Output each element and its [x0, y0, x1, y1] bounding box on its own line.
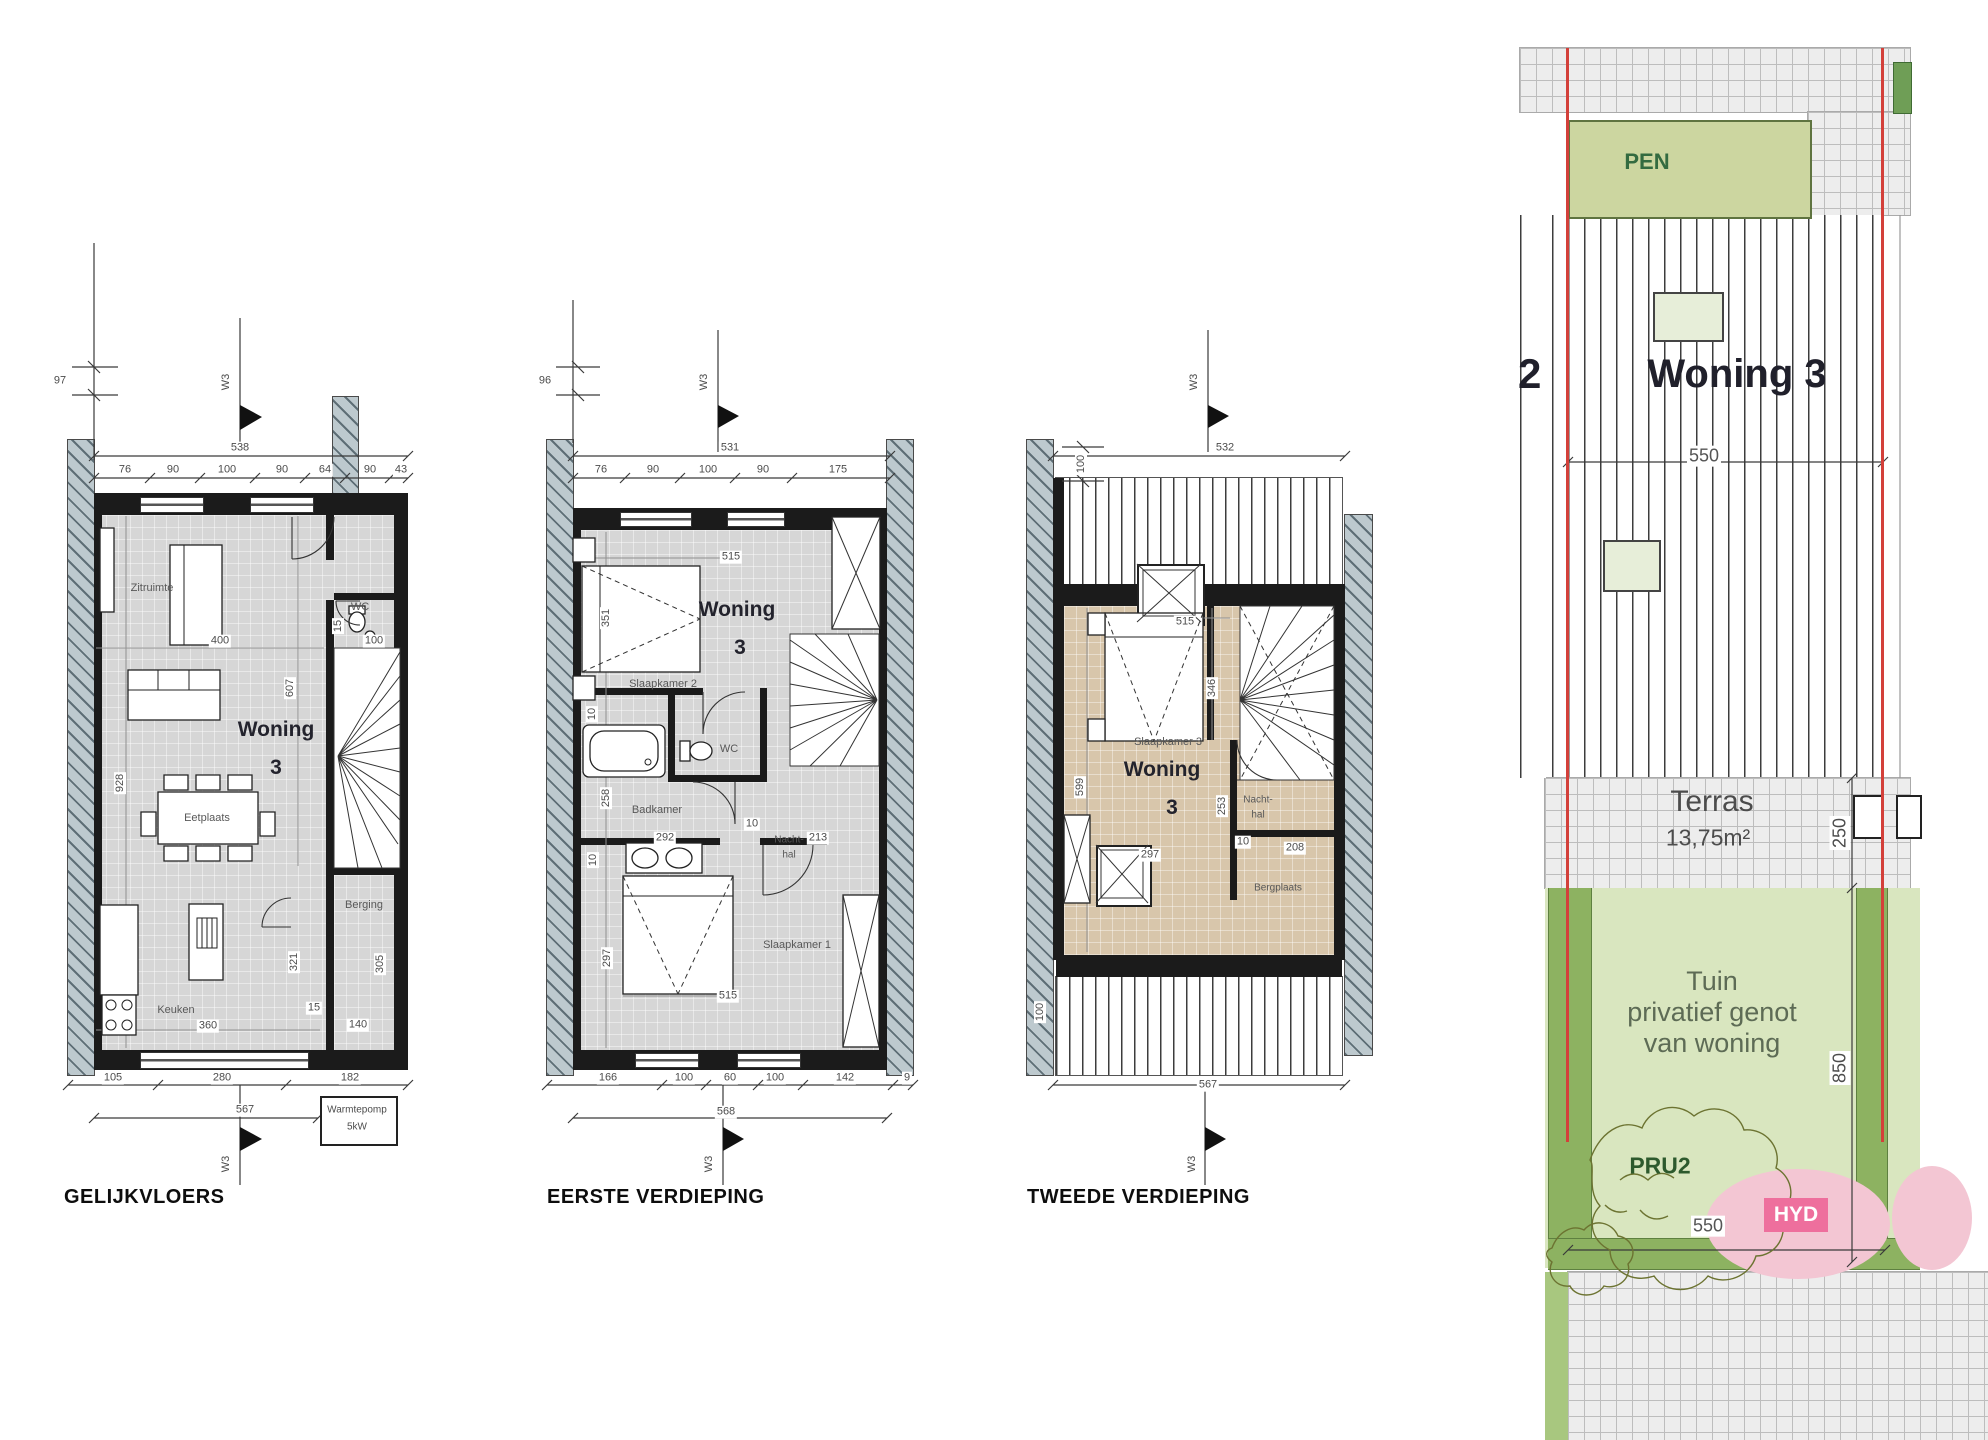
dim-top-p2-1: 90: [645, 464, 661, 477]
sofa-zitruimte: [170, 545, 222, 645]
w3-label-top-p2: W3: [698, 372, 710, 393]
dim-297-p3: 297: [1139, 849, 1161, 862]
wo​ning-label-p1-line2: 3: [270, 756, 282, 780]
dim-bottom-p1-0: 105: [102, 1072, 124, 1085]
dim-10c-p2: 10: [587, 852, 599, 868]
dim-321-p1: 321: [288, 951, 300, 973]
dim-total-top-p3: 532: [1214, 442, 1236, 455]
floorplan-sheet: 97 W3 538 76 90 100 90 64 90 43 Zitruimt…: [0, 0, 1988, 1440]
tuin-line3: van woning: [1602, 1028, 1822, 1059]
dim-bottom-p2-4: 142: [834, 1072, 856, 1085]
dim-10a-p2: 10: [586, 706, 598, 722]
tree-inner-scribble-1: [1605, 1173, 1674, 1218]
dim-offset-p1: 97: [52, 375, 68, 388]
dim-346-p3: 346: [1206, 677, 1218, 699]
dim-258-p2: 258: [600, 787, 612, 809]
dim-top-p2-2: 100: [697, 464, 719, 477]
dim-515-top-p2: 515: [720, 551, 742, 564]
dim-bottom-p2-1: 100: [673, 1072, 695, 1085]
dim-offset-bottom-p3: 100: [1034, 1001, 1046, 1023]
dim-top-p1-5: 90: [362, 464, 378, 477]
sofa-living: [128, 670, 220, 720]
warmtepomp-label-line1: Warmtepomp: [325, 1104, 389, 1116]
kitchen-stove: [102, 995, 136, 1035]
toilet-tank-first: [680, 741, 690, 761]
warmtepomp-label-line2: 5kW: [345, 1121, 369, 1133]
room-label-nachthal-p3-line1: Nacht-: [1243, 795, 1272, 806]
dim-360-p1: 360: [197, 1020, 219, 1033]
dim-515-bottom-p2: 515: [717, 990, 739, 1003]
w3-label-top-p3: W3: [1188, 372, 1200, 393]
neighbor-woning2-partial: 2: [1518, 350, 1541, 398]
w3-label-bottom-p2: W3: [703, 1154, 715, 1175]
dim-15-wc-p1: 15: [332, 618, 344, 634]
bottom-dim2-p1: [89, 1113, 323, 1123]
plan-title-eerste-verdieping: EERSTE VERDIEPING: [547, 1186, 764, 1209]
dim-515-p3: 515: [1174, 616, 1196, 629]
dim-550-garden: 550: [1691, 1216, 1725, 1237]
woning-label-p2-line1: Woning: [699, 598, 776, 622]
dim-400-p1: 400: [209, 635, 231, 648]
dim-top-p1-0: 76: [117, 464, 133, 477]
kitchen-island: [189, 904, 223, 980]
room-label-nachthal-p3-line2: hal: [1251, 810, 1264, 821]
boundary-line-left: [1566, 48, 1569, 1142]
nightstand-slk3-a: [1088, 613, 1105, 635]
room-label-slk1: Slaapkamer 1: [763, 939, 831, 951]
nightstand-slk2-a: [573, 538, 595, 562]
dim-213-p2: 213: [807, 832, 829, 845]
terras-label: Terras: [1670, 785, 1753, 819]
pink-zone-right: [1892, 1166, 1972, 1270]
terras-area-label: 13,75m²: [1666, 825, 1750, 852]
dim-928-p1: 928: [114, 772, 126, 794]
dim-10b-p2: 10: [744, 818, 760, 831]
dim-599-p3: 599: [1074, 776, 1086, 798]
room-label-keuken: Keuken: [157, 1004, 194, 1016]
woning-label-p3-line2: 3: [1166, 796, 1178, 820]
offset-dim-p1: [72, 361, 118, 401]
woning-label-p1-line1: Woning: [238, 718, 315, 742]
woning3-site-label: Woning 3: [1606, 352, 1868, 397]
door-badkamer-p2: [693, 782, 735, 824]
dim-305-p1: 305: [374, 953, 386, 975]
room-label-bergplaats: Bergplaats: [1254, 883, 1302, 894]
dim-bottom-partial-p2: 9: [902, 1072, 912, 1085]
dim-292-p2: 292: [654, 832, 676, 845]
dim-253-p3: 253: [1216, 795, 1228, 817]
sink-counter: [626, 843, 702, 873]
room-label-slk3: Slaapkamer 3: [1134, 736, 1202, 748]
dim-top-p1-2: 100: [216, 464, 238, 477]
room-label-badkamer: Badkamer: [632, 804, 682, 816]
dim-100-wc-p1: 100: [363, 635, 385, 648]
dim-10-p3: 10: [1235, 836, 1251, 849]
dim-total-bottom-p2: 568: [715, 1106, 737, 1119]
offset-dim-p2: [556, 361, 600, 401]
dim-bottom-p1-2: 182: [339, 1072, 361, 1085]
tv-unit: [100, 528, 114, 612]
nightstand-slk3-b: [1088, 719, 1105, 741]
hyd-badge: HYD: [1764, 1198, 1828, 1232]
w3-label-bottom-p1: W3: [220, 1154, 232, 1175]
pru2-label: PRU2: [1629, 1153, 1690, 1180]
boundary-line-right: [1881, 48, 1884, 1142]
tuin-line1: Tuin: [1602, 966, 1822, 997]
dim-140-p1: 140: [347, 1019, 369, 1032]
w3-label-top-p1: W3: [220, 372, 232, 393]
dim-351-p2: 351: [600, 607, 612, 629]
woning-label-p3-line1: Woning: [1124, 758, 1201, 782]
room-label-slk2: Slaapkamer 2: [629, 678, 697, 690]
bed-slk3: [1105, 613, 1203, 741]
dim-top-p2-4: 175: [827, 464, 849, 477]
dim-top-p1-4: 64: [317, 464, 333, 477]
dim-total-bottom-p1: 567: [234, 1104, 256, 1117]
pink-zones: [1706, 1166, 1972, 1279]
stairs-first: [790, 634, 879, 766]
room-label-zitruimte: Zitruimte: [131, 582, 174, 594]
room-label-nachthal-p2-line1: Nacht-: [774, 835, 803, 846]
dim-top-p1-1: 90: [165, 464, 181, 477]
dim-total-top-p1: 538: [229, 442, 251, 455]
cross-symbols: [832, 517, 1201, 1047]
dim-top-p1-3: 90: [274, 464, 290, 477]
dim-offset-top-p3: 100: [1075, 453, 1087, 475]
pen-label: PEN: [1624, 149, 1669, 175]
top-total-dim-p3: [1048, 451, 1350, 461]
dim-208-p3: 208: [1284, 842, 1306, 855]
bathtub: [583, 725, 665, 777]
woning-label-p2-line2: 3: [734, 636, 746, 660]
dim-offset-p2: 96: [537, 375, 553, 388]
plan-title-tweede-verdieping: TWEEDE VERDIEPING: [1027, 1186, 1250, 1209]
room-label-nachthal-p2-line2: hal: [782, 850, 795, 861]
tuin-line2: privatief genot: [1602, 997, 1822, 1028]
w3-label-bottom-p3: W3: [1186, 1154, 1198, 1175]
toilet-bowl-ground: [349, 612, 365, 632]
ref-lines-p3: [1205, 330, 1208, 1185]
furniture: [100, 517, 1203, 1047]
hyd-label: HYD: [1774, 1203, 1818, 1227]
dim-bottom-p2-3: 100: [764, 1072, 786, 1085]
tree-small: [1547, 1223, 1633, 1295]
room-label-eetplaats: Eetplaats: [184, 812, 230, 824]
dim-550-roof: 550: [1687, 446, 1721, 467]
dim-total-bottom-p3: 567: [1197, 1079, 1219, 1092]
dim-bottom-p2-2: 60: [722, 1072, 738, 1085]
room-label-berging: Berging: [345, 899, 383, 911]
dim-607-p1: 607: [284, 677, 296, 699]
tuin-label-block: Tuin privatief genot van woning: [1602, 966, 1822, 1059]
dim-550-roof-line: [1563, 457, 1888, 467]
bed-slk1: [623, 876, 733, 994]
dim-bottom-p1-1: 280: [211, 1072, 233, 1085]
plan-title-gelijkvloers: GELIJKVLOERS: [64, 1186, 224, 1209]
kitchen-counter: [100, 905, 138, 995]
dim-297-p2: 297: [601, 947, 613, 969]
dim-850: 850: [1830, 1051, 1851, 1085]
dim-top-p2-0: 76: [593, 464, 609, 477]
dim-total-top-p2: 531: [719, 442, 741, 455]
dim-top-p2-3: 90: [755, 464, 771, 477]
room-label-wc-p1: WC: [351, 601, 369, 613]
door-berging-p1: [262, 898, 291, 927]
dim-15-door-p1: 15: [306, 1002, 322, 1015]
dim-250: 250: [1830, 816, 1851, 850]
room-label-wc-p2: WC: [720, 743, 738, 755]
dim-bottom-p2-0: 166: [597, 1072, 619, 1085]
door-slk2-p2: [703, 692, 745, 734]
nightstand-slk2-b: [573, 676, 595, 700]
toilet-bowl-first: [690, 742, 712, 760]
dim-top-p1-6: 43: [393, 464, 409, 477]
